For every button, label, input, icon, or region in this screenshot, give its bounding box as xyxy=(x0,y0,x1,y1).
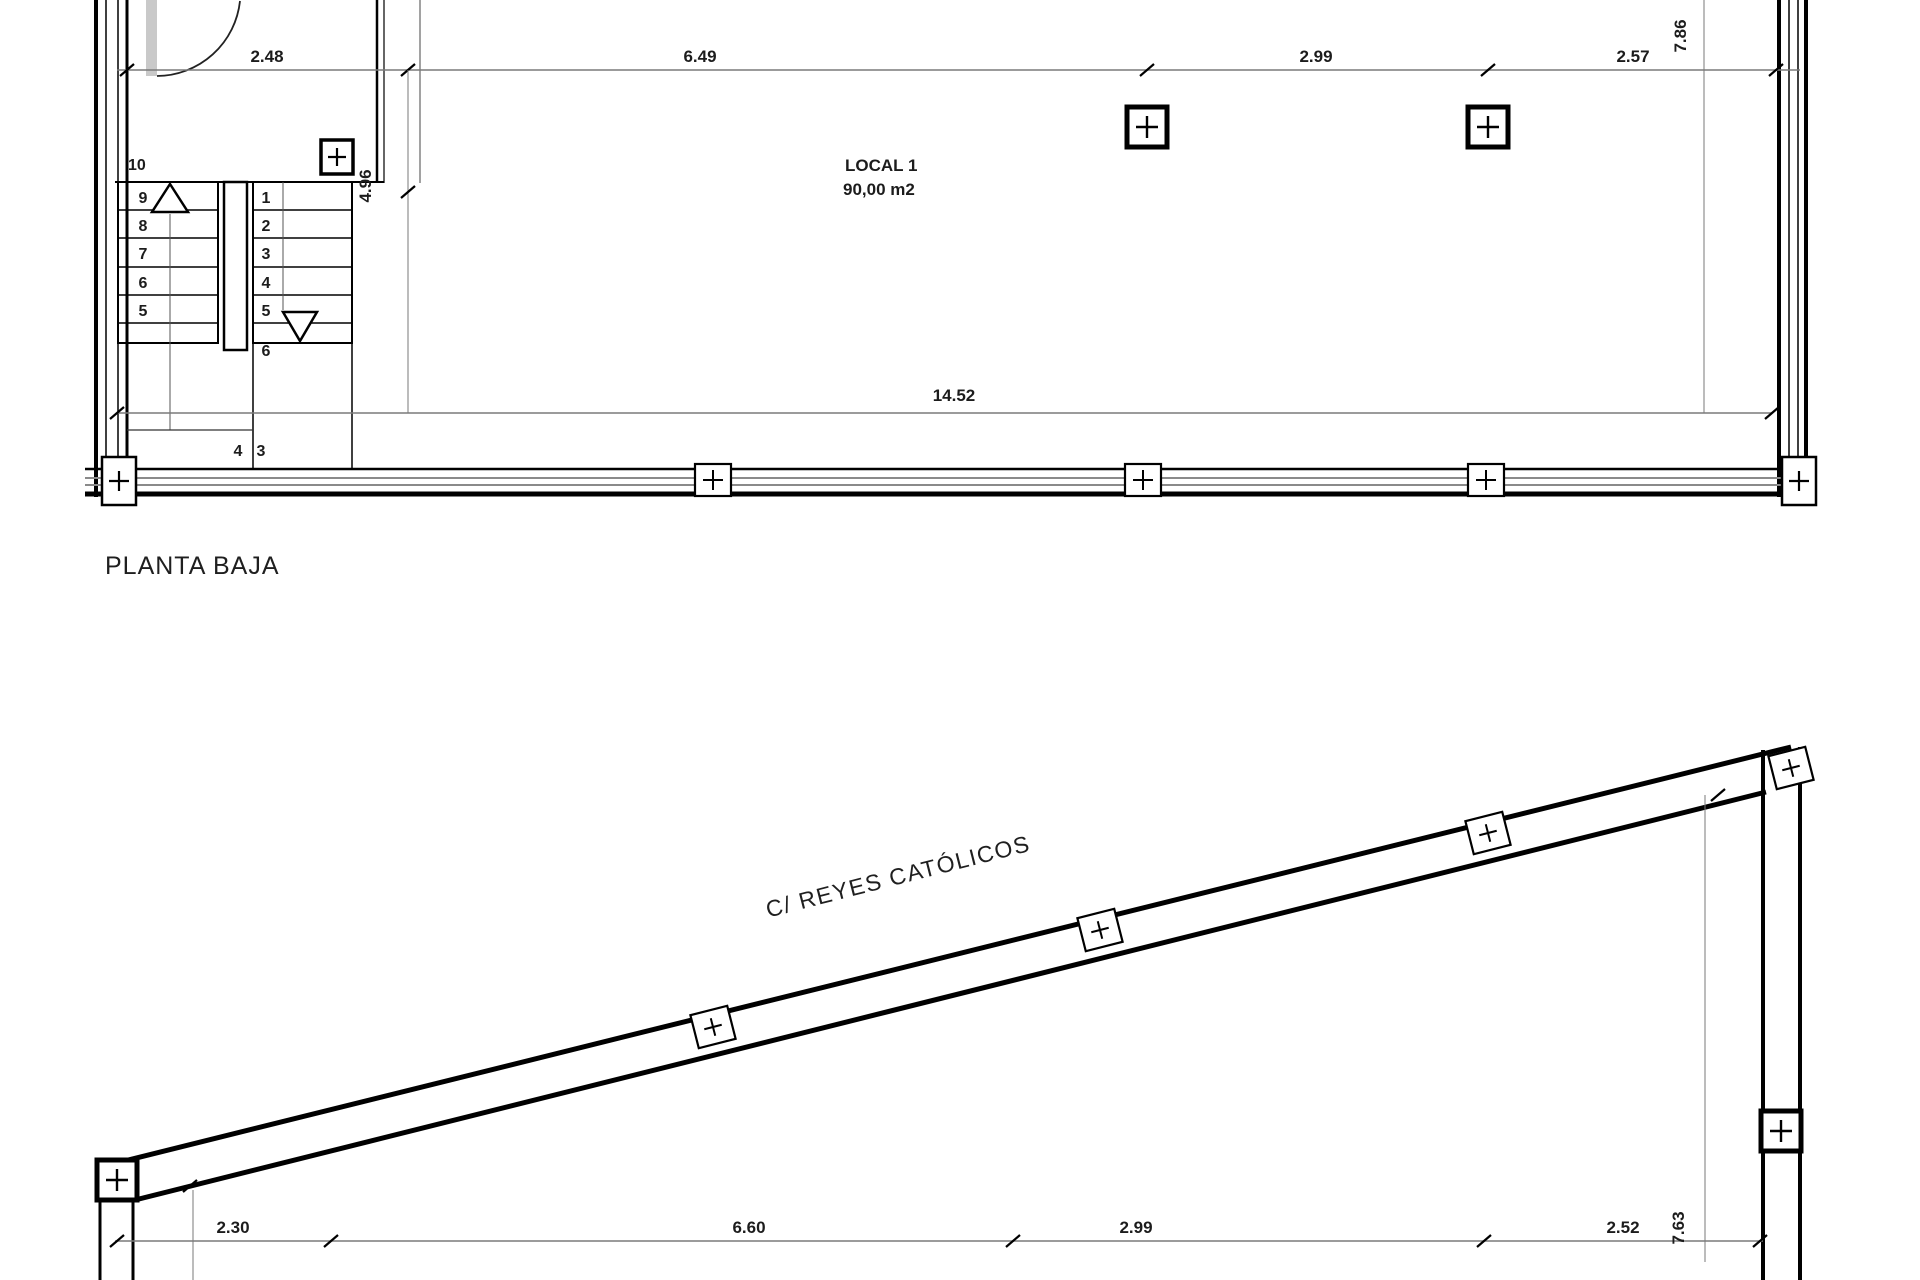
stair-step-label: 2 xyxy=(262,218,271,235)
column-marker-icon xyxy=(321,140,353,174)
door-leaf xyxy=(146,0,157,76)
planta-calle-plan: C/ REYES CATÓLICOS 2.30 6.60 xyxy=(97,747,1814,1280)
column-marker-icon xyxy=(102,457,136,505)
planta-baja-plan: 10 9 8 7 6 5 1 2 3 4 5 6 4 3 2.48 6.49 2… xyxy=(85,0,1816,580)
right-wall xyxy=(1763,747,1800,1280)
dimension-label: 2.48 xyxy=(250,47,283,66)
stair-step-label: 5 xyxy=(262,303,271,320)
floor-plan-sheet: 10 9 8 7 6 5 1 2 3 4 5 6 4 3 2.48 6.49 2… xyxy=(0,0,1920,1280)
plan-title: PLANTA BAJA xyxy=(105,552,280,580)
dimension-label: 7.63 xyxy=(1669,1211,1688,1244)
dimension-label: 2.99 xyxy=(1119,1218,1152,1237)
column-markers xyxy=(97,747,1814,1200)
stair-down-arrow-icon xyxy=(283,312,317,341)
stair-step-label: 1 xyxy=(262,190,271,207)
column-marker-icon xyxy=(1125,464,1161,496)
dimension-label: 2.30 xyxy=(216,1218,249,1237)
dimension-label: 7.86 xyxy=(1671,19,1690,52)
column-marker-icon xyxy=(695,464,731,496)
dimension-label: 2.99 xyxy=(1299,47,1332,66)
top-dimension-chain: 2.48 6.49 2.99 2.57 xyxy=(117,47,1800,76)
vertical-dimensions: 4.96 7.86 xyxy=(356,0,1704,413)
stair-up-arrow-icon xyxy=(152,184,188,212)
dimension-label: 4.96 xyxy=(356,169,375,202)
total-width-dimension: 14.52 xyxy=(110,386,1779,419)
column-marker-icon xyxy=(1465,812,1510,854)
column-marker-icon xyxy=(1127,107,1167,147)
grid-label: 3 xyxy=(257,443,266,460)
column-marker-icon xyxy=(97,1160,137,1200)
grid-label: 4 xyxy=(234,443,243,460)
dimension-label: 2.57 xyxy=(1616,47,1649,66)
door-swing-arc xyxy=(157,1,240,76)
vestibule-walls xyxy=(377,0,420,183)
stair-stringer-wall xyxy=(224,182,247,350)
dimension-label: 14.52 xyxy=(933,386,976,405)
stair-step-label: 3 xyxy=(262,246,271,263)
dimension-label: 6.49 xyxy=(683,47,716,66)
column-marker-icon xyxy=(1468,107,1508,147)
column-marker-icon xyxy=(1782,457,1816,505)
stair-step-label: 6 xyxy=(262,343,271,360)
column-marker-icon xyxy=(1077,909,1122,951)
right-wall xyxy=(1779,0,1806,497)
stair-step-label: 9 xyxy=(139,190,148,207)
dimension-label: 6.60 xyxy=(732,1218,765,1237)
stair-step-label: 10 xyxy=(128,157,146,174)
room-label: LOCAL 1 90,00 m2 xyxy=(843,156,917,199)
stair-step-label: 5 xyxy=(139,303,148,320)
street-facade-wall xyxy=(112,747,1791,1200)
column-marker-icon xyxy=(1468,464,1504,496)
dimension-label: 2.52 xyxy=(1606,1218,1639,1237)
stair-step-label: 8 xyxy=(139,218,148,235)
column-marker-icon xyxy=(690,1006,735,1048)
stair-step-label: 7 xyxy=(139,246,148,263)
bottom-dimension-chain: 2.30 6.60 2.99 2.52 7.63 xyxy=(110,1211,1767,1247)
stair-step-label: 4 xyxy=(262,275,271,292)
room-name: LOCAL 1 xyxy=(845,156,917,175)
stair-step-label: 6 xyxy=(139,275,148,292)
column-marker-icon xyxy=(1761,1111,1801,1151)
room-area: 90,00 m2 xyxy=(843,180,915,199)
cad-drawing: 10 9 8 7 6 5 1 2 3 4 5 6 4 3 2.48 6.49 2… xyxy=(0,0,1920,1280)
storefront-facade xyxy=(85,469,1812,494)
street-name-label: C/ REYES CATÓLICOS xyxy=(763,830,1033,922)
staircase: 10 9 8 7 6 5 1 2 3 4 5 6 4 3 xyxy=(115,157,384,469)
column-markers xyxy=(102,107,1816,505)
entrance-door xyxy=(146,0,240,76)
dimension-tick-icon xyxy=(1711,789,1725,801)
